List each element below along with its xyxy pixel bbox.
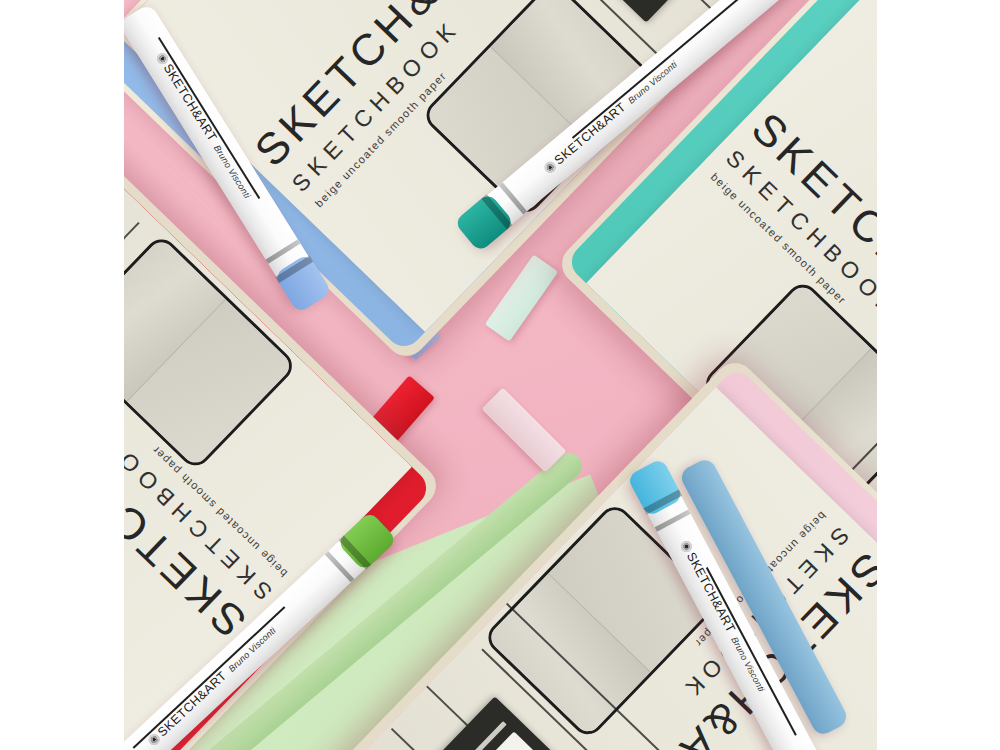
bookmark-ribbon-pink	[482, 388, 567, 473]
marker-ring	[655, 509, 691, 531]
barcode-label	[405, 696, 557, 750]
flatlay-photo: SKETCH&ARTBruno Visconti SKETCH&ART SKET…	[124, 0, 877, 750]
photo-stage: SKETCH&ARTBruno Visconti SKETCH&ART SKET…	[0, 0, 1000, 750]
